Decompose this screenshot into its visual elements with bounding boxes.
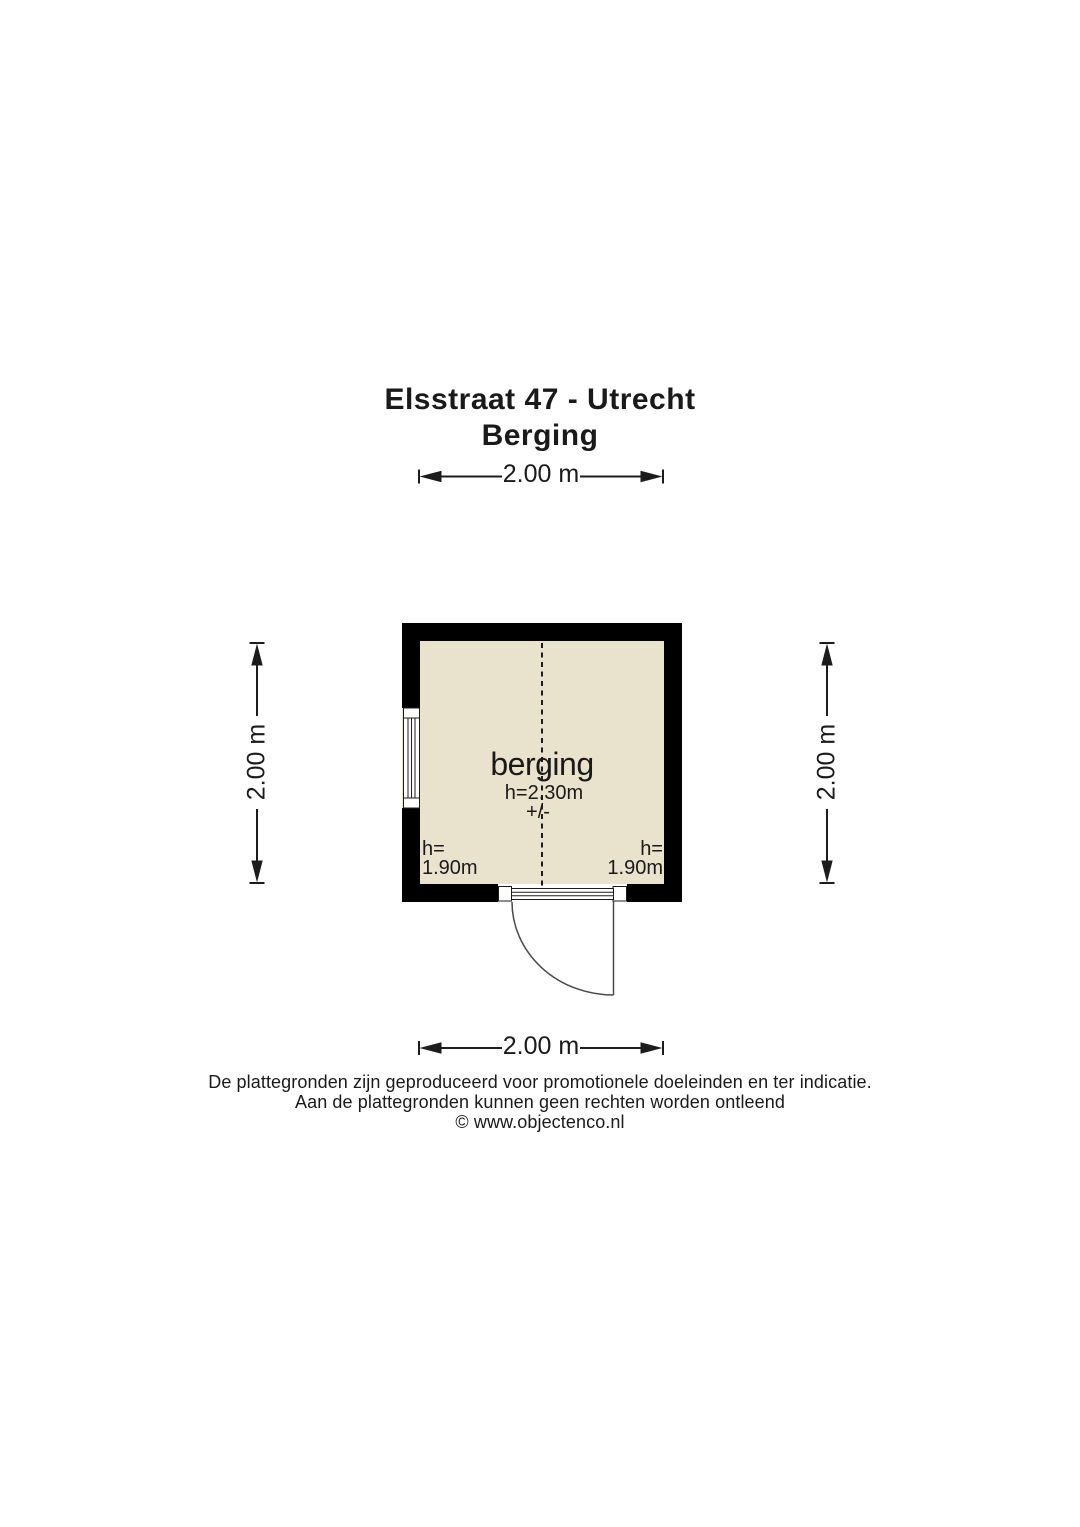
wall-right	[664, 623, 682, 902]
arrowhead-right-icon	[641, 1042, 663, 1053]
door-swing-arc	[512, 902, 614, 995]
arrowhead-down-icon	[821, 861, 832, 883]
window-symbol	[404, 708, 420, 808]
room-name-label: berging	[490, 748, 593, 780]
arrowhead-left-icon	[420, 1042, 442, 1053]
dimension-label-left: 2.00 m	[245, 724, 270, 800]
arrowhead-left-icon	[420, 471, 442, 482]
room-tolerance-label: +/-	[526, 802, 550, 822]
arrowhead-up-icon	[251, 644, 262, 666]
door-swing	[512, 902, 614, 996]
wall-bottom-right	[627, 884, 682, 902]
arrowhead-up-icon	[821, 644, 832, 666]
door-jamb-left	[499, 887, 512, 902]
wall-bottom-left	[402, 884, 498, 902]
wall-top	[402, 623, 682, 641]
footer-line2: Aan de plattegronden kunnen geen rechten…	[0, 1092, 1080, 1112]
footer-line1: De plattegronden zijn geproduceerd voor …	[0, 1072, 1080, 1092]
right-wall-height-label: h= 1.90m	[607, 840, 663, 878]
left-wall-height-line2: 1.90m	[422, 859, 478, 878]
arrowhead-down-icon	[251, 861, 262, 883]
wall-left-upper	[402, 623, 420, 708]
floorplan-page: Elsstraat 47 - Utrecht Berging	[0, 0, 1080, 1527]
arrowhead-right-icon	[641, 471, 663, 482]
footer-copyright: © www.objectenco.nl	[0, 1112, 1080, 1132]
dimension-label-right: 2.00 m	[815, 724, 840, 800]
dimension-label-bottom: 2.00 m	[503, 1034, 579, 1059]
door-track	[512, 889, 614, 900]
footer-disclaimer: De plattegronden zijn geproduceerd voor …	[0, 1072, 1080, 1132]
right-wall-height-line2: 1.90m	[607, 859, 663, 878]
door-threshold	[498, 884, 627, 902]
dimension-label-top: 2.00 m	[503, 462, 579, 487]
room-ceiling-height-label: h=2.30m	[505, 783, 583, 803]
left-wall-height-label: h= 1.90m	[422, 840, 478, 878]
door-jamb-right	[613, 887, 627, 902]
